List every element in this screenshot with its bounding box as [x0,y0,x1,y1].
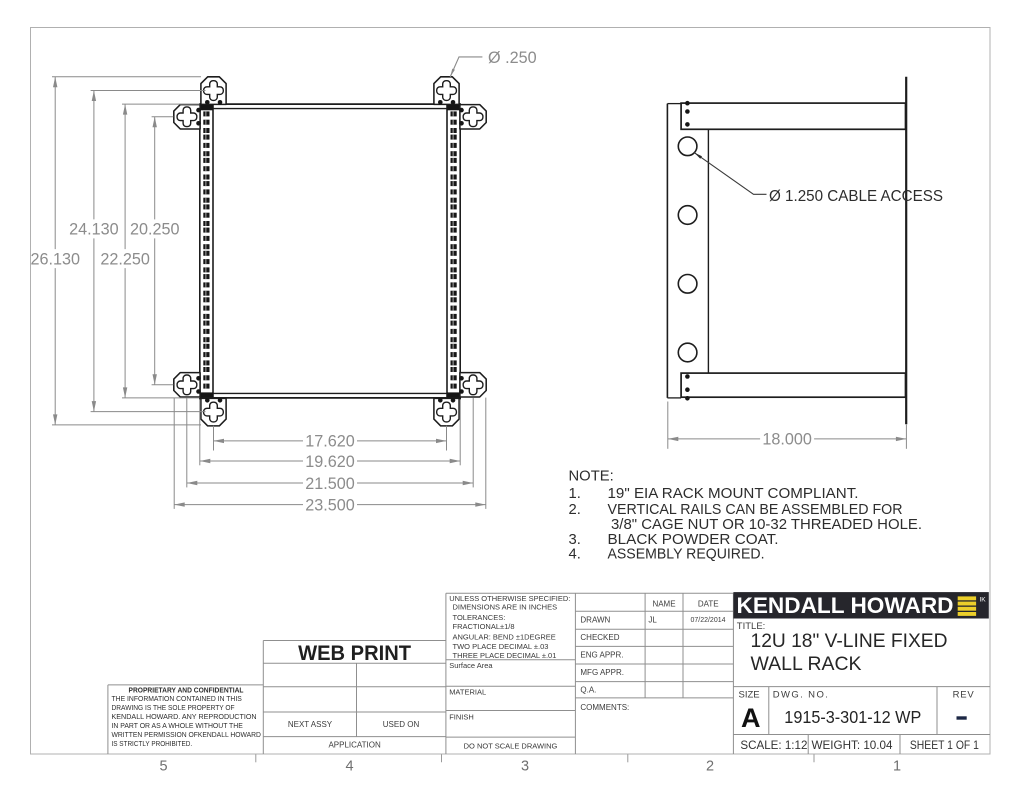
svg-text:WRITTEN PERMISSION OFKENDALL H: WRITTEN PERMISSION OFKENDALL HOWARD [112,730,261,739]
svg-text:24.130: 24.130 [69,221,119,239]
svg-text:WALL RACK: WALL RACK [751,653,862,675]
svg-text:26.130: 26.130 [30,250,80,268]
svg-text:SIZE: SIZE [739,690,760,701]
svg-text:12U 18" V-LINE FIXED: 12U 18" V-LINE FIXED [751,630,948,652]
svg-text:JL: JL [648,615,657,624]
svg-text:2: 2 [706,759,714,775]
svg-text:THREE PLACE DECIMAL ±.01: THREE PLACE DECIMAL ±.01 [453,651,557,660]
svg-text:ANGULAR: BEND ±1DEGREE: ANGULAR: BEND ±1DEGREE [453,632,556,641]
svg-text:DO NOT SCALE DRAWING: DO NOT SCALE DRAWING [464,742,558,751]
svg-text:19" EIA RACK MOUNT COMPLIANT.: 19" EIA RACK MOUNT COMPLIANT. [608,486,859,502]
svg-text:23.500: 23.500 [305,496,355,514]
svg-text:DWG. NO.: DWG. NO. [773,690,830,701]
svg-text:3/8" CAGE NUT OR 10-32 THREADE: 3/8" CAGE NUT OR 10-32 THREADED HOLE. [611,517,922,533]
svg-text:IS STRICTLY PROHIBITED.: IS STRICTLY PROHIBITED. [112,739,193,748]
svg-text:APPLICATION: APPLICATION [328,741,381,750]
svg-text:FINISH: FINISH [449,712,474,721]
svg-text:SHEET 1 OF 1: SHEET 1 OF 1 [910,738,979,752]
svg-text:REV: REV [953,690,975,701]
svg-text:IN PART OR AS A WHOLE WITHOUT: IN PART OR AS A WHOLE WITHOUT THE [112,721,243,730]
svg-text:Ø .250: Ø .250 [488,49,537,67]
svg-text:NEXT ASSY: NEXT ASSY [288,720,333,729]
svg-text:20.250: 20.250 [130,221,180,239]
svg-text:MATERIAL: MATERIAL [449,687,486,696]
svg-text:DIMENSIONS ARE IN INCHES: DIMENSIONS ARE IN INCHES [453,602,558,611]
svg-text:KENDALL HOWARD: KENDALL HOWARD [737,593,954,618]
svg-text:WEIGHT: 10.04: WEIGHT: 10.04 [812,738,893,752]
svg-text:IK: IK [980,597,987,604]
svg-text:TOLERANCES:: TOLERANCES: [453,613,506,622]
svg-text:KENDALL HOWARD. ANY REPRODUCT: KENDALL HOWARD. ANY REPRODUCTION [112,712,257,721]
svg-text:THE INFORMATION CONTAINED IN T: THE INFORMATION CONTAINED IN THIS [112,694,242,703]
svg-text:1.: 1. [569,486,581,502]
svg-text:TWO PLACE DECIMAL ±.03: TWO PLACE DECIMAL ±.03 [453,642,549,651]
svg-text:Ø 1.250 CABLE ACCESS: Ø 1.250 CABLE ACCESS [769,188,943,205]
svg-text:17.620: 17.620 [305,433,355,451]
svg-text:4: 4 [345,759,353,775]
svg-text:FRACTIONAL±1/8: FRACTIONAL±1/8 [453,622,515,631]
svg-text:ASSEMBLY REQUIRED.: ASSEMBLY REQUIRED. [608,547,765,563]
svg-text:3: 3 [521,759,529,775]
svg-text:DRAWING IS THE SOLE PROPERTY O: DRAWING IS THE SOLE PROPERTY OF [112,703,236,712]
svg-text:WEB PRINT: WEB PRINT [298,641,411,665]
svg-text:07/22/2014: 07/22/2014 [690,617,725,624]
svg-text:USED ON: USED ON [383,720,420,729]
svg-text:DRAWN: DRAWN [580,615,610,624]
svg-text:5: 5 [159,759,167,775]
svg-text:NAME: NAME [652,600,675,609]
svg-text:19.620: 19.620 [305,453,355,471]
svg-text:SCALE: 1:12: SCALE: 1:12 [740,738,807,752]
svg-text:VERTICAL RAILS CAN BE ASSEMBLE: VERTICAL RAILS CAN BE ASSEMBLED FOR [608,502,903,518]
svg-text:22.250: 22.250 [100,250,150,268]
svg-text:COMMENTS:: COMMENTS: [580,703,629,712]
svg-text:CHECKED: CHECKED [580,633,619,642]
svg-text:Surface Area: Surface Area [449,661,493,670]
svg-text:DATE: DATE [698,600,719,609]
svg-text:A: A [741,703,761,733]
svg-text:18.000: 18.000 [762,431,812,449]
svg-text:1915-3-301-12 WP: 1915-3-301-12 WP [784,707,921,727]
svg-text:MFG APPR.: MFG APPR. [580,668,624,677]
svg-text:1: 1 [893,759,901,775]
svg-text:Q.A.: Q.A. [580,686,596,695]
svg-text:ENG APPR.: ENG APPR. [580,651,623,660]
svg-text:2.: 2. [569,502,581,518]
svg-text:NOTE:: NOTE: [569,469,614,485]
svg-text:4.: 4. [569,547,581,563]
svg-text:21.500: 21.500 [305,475,355,493]
